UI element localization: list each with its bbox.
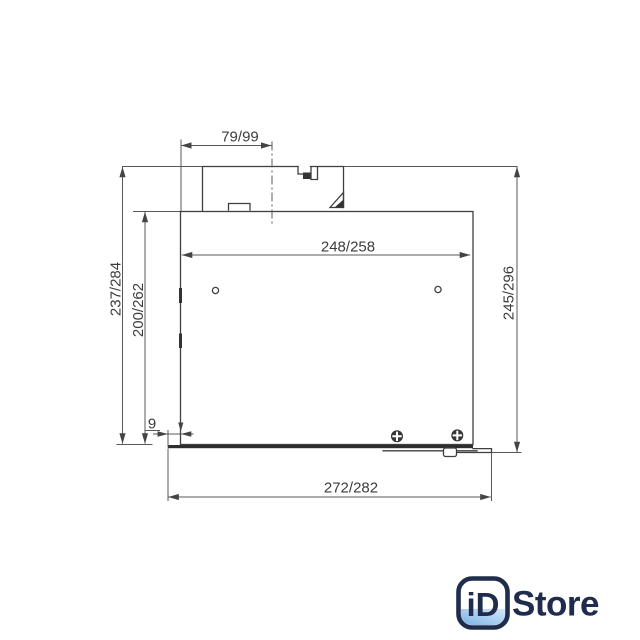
screw-icon bbox=[391, 430, 404, 443]
dim-label-right-height: 245/296 bbox=[501, 266, 518, 320]
dim-label-left-inner-height: 200/262 bbox=[130, 283, 147, 337]
logo-store-text: Store bbox=[512, 585, 599, 624]
logo-badge-text: iD bbox=[467, 586, 500, 623]
dim-label-bottom-width: 272/282 bbox=[324, 480, 378, 497]
duct-tab bbox=[229, 204, 251, 211]
plate-foot bbox=[444, 448, 457, 457]
dim-right-height: 245/296 bbox=[492, 167, 522, 453]
duct-box-outline bbox=[203, 167, 344, 211]
mounting-hole-left bbox=[212, 287, 218, 293]
dim-label-left-outer-height: 237/284 bbox=[108, 262, 125, 316]
duct-notch bbox=[298, 167, 318, 180]
dim-label-top-width: 79/99 bbox=[221, 129, 259, 146]
technical-drawing: 79/99 248/258 237/284 200/262 245/296 9 … bbox=[0, 0, 640, 640]
duct-corner-triangle bbox=[330, 193, 344, 208]
mounting-hole-right bbox=[435, 286, 441, 292]
dim-bottom-offset: 9 bbox=[145, 416, 194, 448]
screw-icon bbox=[451, 429, 464, 442]
bottom-plate bbox=[168, 445, 473, 448]
dim-left-inner-height: 200/262 bbox=[130, 212, 147, 444]
dim-label-bottom-offset: 9 bbox=[148, 416, 156, 433]
dim-inner-width: 248/258 bbox=[182, 239, 470, 256]
dim-bottom-width: 272/282 bbox=[168, 449, 492, 502]
screenshot-canvas: 79/99 248/258 237/284 200/262 245/296 9 … bbox=[0, 0, 640, 640]
dim-top-width: 79/99 bbox=[181, 129, 272, 212]
dim-label-inner-width: 248/258 bbox=[321, 239, 375, 256]
idstore-logo: iD Store bbox=[457, 579, 599, 630]
